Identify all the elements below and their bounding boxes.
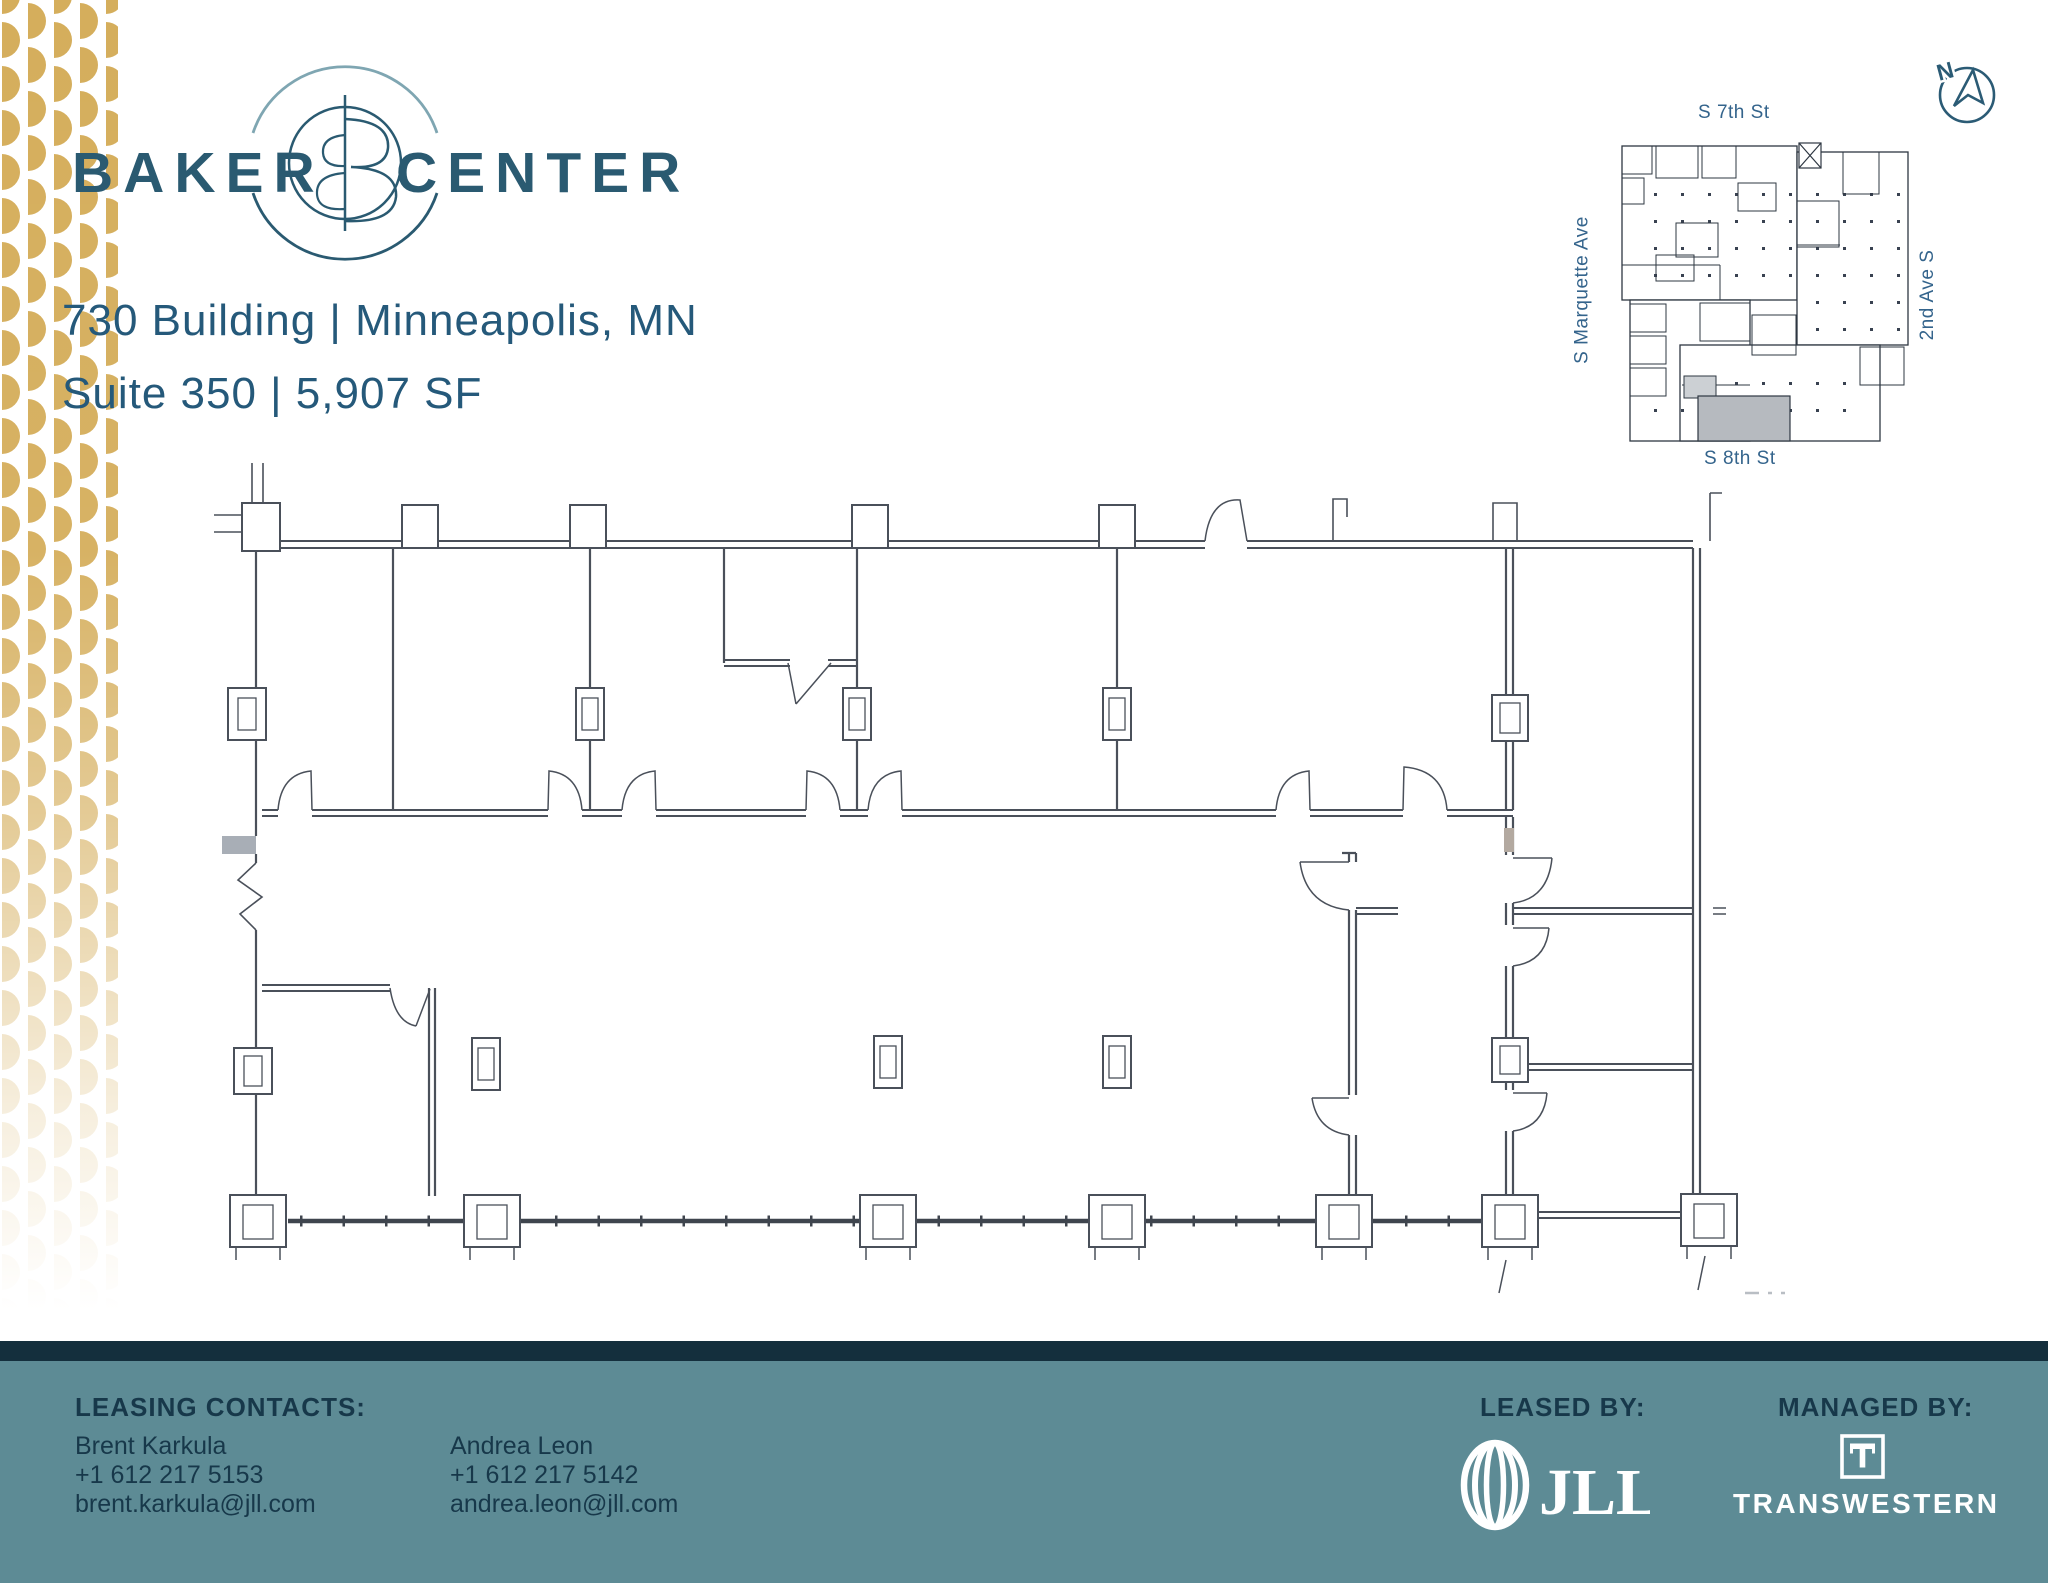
column-feet <box>236 1246 1731 1293</box>
wall-connector-gray <box>222 836 256 854</box>
structural-columns <box>228 503 1737 1247</box>
street-label-right: 2nd Ave S <box>1917 240 1939 350</box>
brand-word-right: CENTER <box>396 141 690 205</box>
jll-logo: JLL <box>1455 1438 1650 1533</box>
leased-by-label: LEASED BY: <box>1480 1392 1646 1423</box>
leasing-contacts-heading: LEASING CONTACTS: <box>75 1392 366 1423</box>
property-title-line-2: Suite 350 | 5,907 SF <box>62 369 482 419</box>
contact-name: Andrea Leon <box>450 1432 678 1461</box>
street-label-left: S Marquette Ave <box>1572 193 1594 388</box>
brand-word-left: BAKER <box>72 141 325 205</box>
property-title-line-1: 730 Building | Minneapolis, MN <box>62 296 698 346</box>
door-jamb-gray <box>1504 828 1514 852</box>
flyer-page: BAKER CENTER 730 Building | Minneapolis,… <box>0 0 2048 1583</box>
footer-navy-stripe <box>0 1341 2048 1361</box>
floor-plan-drawing <box>195 450 1785 1315</box>
key-map-shaft-x <box>1799 143 1821 168</box>
contact-email: brent.karkula@jll.com <box>75 1490 316 1519</box>
transwestern-logo-mark <box>1840 1434 1886 1480</box>
door-swings <box>278 500 1552 1135</box>
street-label-top: S 7th St <box>1698 102 1770 124</box>
key-map <box>1600 85 1945 485</box>
managed-by-label: MANAGED BY: <box>1778 1392 1973 1423</box>
contact-name: Brent Karkula <box>75 1432 316 1461</box>
contact-phone: +1 612 217 5142 <box>450 1461 678 1490</box>
suite-walls-horizontal <box>262 541 1693 1218</box>
contact-email: andrea.leon@jll.com <box>450 1490 678 1519</box>
transwestern-wordmark: TRANSWESTERN <box>1733 1488 1999 1520</box>
suite-walls <box>256 548 1700 1218</box>
compass-north-letter: N <box>1934 56 1957 85</box>
north-compass-icon: N <box>1925 48 2005 138</box>
logo-monogram-b <box>345 119 396 221</box>
leasing-contact-1: Brent Karkula +1 612 217 5153 brent.kark… <box>75 1432 316 1519</box>
jll-wordmark: JLL <box>1539 1456 1650 1529</box>
baker-center-logo: BAKER CENTER <box>60 45 700 295</box>
contact-phone: +1 612 217 5153 <box>75 1461 316 1490</box>
leasing-contact-2: Andrea Leon +1 612 217 5142 andrea.leon@… <box>450 1432 678 1519</box>
